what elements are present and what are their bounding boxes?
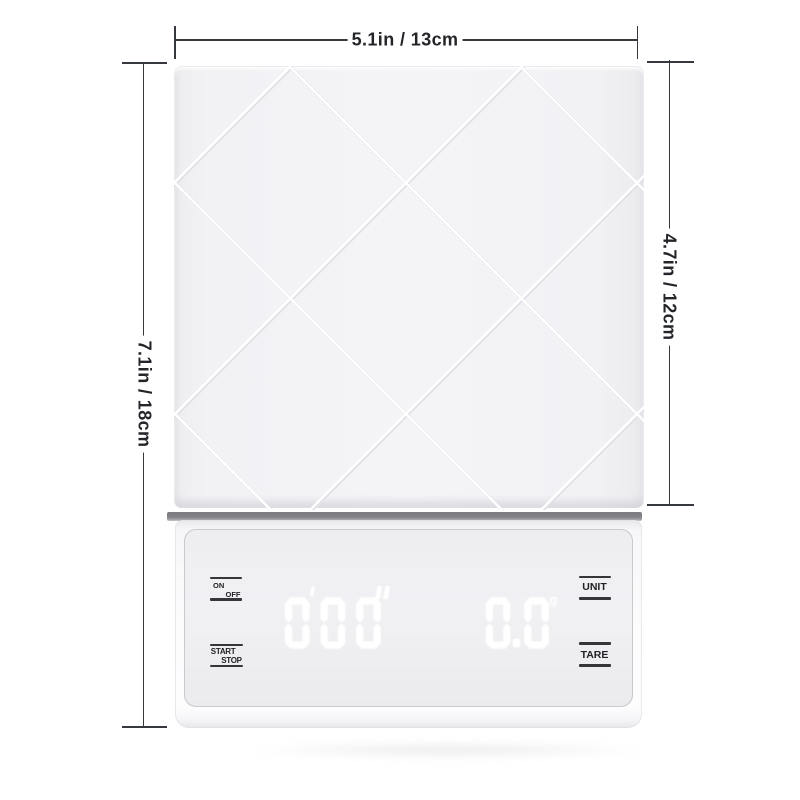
svg-text:g: g <box>550 593 558 607</box>
